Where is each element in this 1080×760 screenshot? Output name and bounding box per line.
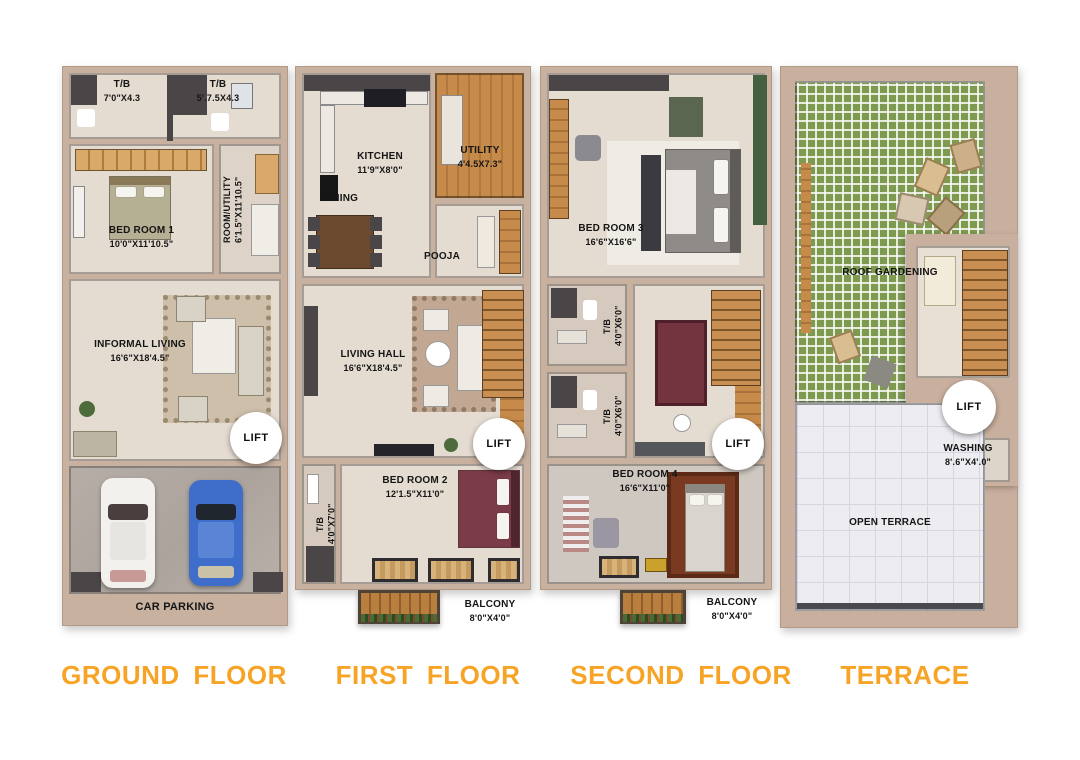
- label-tb-left: T/B 7'0"X4.3: [86, 78, 158, 104]
- wardrobe-panel: [488, 558, 520, 582]
- shower-area: [551, 376, 577, 408]
- room-name: T/B: [315, 470, 327, 578]
- room-name: CAR PARKING: [69, 600, 281, 615]
- bed-sheet: [666, 170, 696, 234]
- room-name: ROOF GARDENING: [810, 266, 970, 280]
- room-name: DINING: [305, 192, 375, 206]
- chair: [370, 235, 382, 249]
- ff-lift: LIFT: [473, 418, 525, 470]
- lounge-chair: [829, 330, 861, 365]
- label-bedroom3: BED ROOM 3 16'6"X16'6": [556, 222, 666, 248]
- room-name: T/B: [602, 290, 614, 362]
- label-pooja: POOJA: [407, 250, 477, 264]
- room-dims: 4'0"X7'0": [327, 470, 339, 578]
- plant: [79, 401, 95, 417]
- pillow: [116, 187, 136, 197]
- label-sf-tb-lower: T/B 4'0"X6'0": [602, 378, 625, 454]
- dining-table: [316, 215, 374, 269]
- room-name: LIVING HALL: [313, 348, 433, 362]
- wardrobe: [549, 99, 569, 219]
- label-bedroom4: BED ROOM 4 16'6"X11'0": [580, 468, 710, 494]
- armchair: [423, 309, 449, 331]
- room-name: KITCHEN: [325, 150, 435, 164]
- label-kitchen: KITCHEN 11'9"X8'0": [325, 150, 435, 176]
- car-roof: [198, 522, 234, 558]
- room-dims: 4'0"X6'0": [614, 290, 626, 362]
- label-informal-living: INFORMAL LIVING 16'6"X18'4.5": [74, 338, 206, 364]
- windshield: [196, 504, 236, 520]
- room-name: BED ROOM 1: [69, 224, 214, 238]
- study-desk: [549, 75, 669, 91]
- ground-floor-plan: T/B 7'0"X4.3 T/B 5'.7.5X4.3 BED ROOM 1 1…: [62, 66, 288, 626]
- gate-pillar: [253, 572, 283, 592]
- chair: [593, 518, 619, 548]
- floor-plan-sheet: T/B 7'0"X4.3 T/B 5'.7.5X4.3 BED ROOM 1 1…: [0, 0, 1080, 760]
- console-table: [374, 444, 434, 456]
- room-dims: 10'0"X11'10.5": [69, 238, 214, 250]
- second-floor-title: SECOND FLOOR: [570, 660, 791, 691]
- washbasin-counter: [557, 424, 587, 438]
- garden-stool: [863, 355, 896, 388]
- toilet: [583, 300, 597, 320]
- staircase: [482, 290, 524, 398]
- open-terrace: [795, 403, 985, 611]
- lounge-chair: [914, 157, 951, 197]
- label-dining: DINING: [305, 192, 375, 206]
- room-name: UTILITY: [437, 144, 523, 158]
- shower-area: [551, 288, 577, 318]
- pooja-cabinet: [499, 210, 521, 274]
- label-bedroom2: BED ROOM 2 12'1.5"X11'0": [355, 474, 475, 500]
- terrace-lift: LIFT: [942, 380, 996, 434]
- room-dims: 11'9"X8'0": [325, 164, 435, 176]
- ff-utility: [435, 73, 524, 198]
- wardrobe: [75, 149, 207, 171]
- second-floor-plan: BED ROOM 3 16'6"X16'6" T/B 4'0"X6'0" T/B…: [540, 66, 772, 590]
- bed: [665, 149, 741, 253]
- headboard: [730, 150, 740, 252]
- room-dims: 8'.6"X4'.0": [926, 456, 1010, 468]
- room-name: OPEN TERRACE: [825, 516, 955, 530]
- toilet: [583, 390, 597, 410]
- chair: [370, 253, 382, 267]
- plant-strip: [753, 75, 767, 225]
- lounge-chair: [949, 138, 982, 174]
- striped-rug: [563, 496, 589, 552]
- lift-label: LIFT: [956, 401, 981, 413]
- room-name: POOJA: [407, 250, 477, 264]
- room-name: T/B: [602, 378, 614, 454]
- console-table: [635, 442, 705, 456]
- room-dims: 16'6"X18'4.5": [313, 362, 433, 374]
- ground-floor-title: GROUND FLOOR: [61, 660, 287, 691]
- plant: [444, 438, 458, 452]
- bed: [685, 484, 725, 572]
- room-dims: 4'4.5X7.3": [437, 158, 523, 170]
- label-ff-balcony: BALCONY 8'0"X4'0": [450, 598, 530, 624]
- room-dims: 12'1.5"X11'0": [355, 488, 475, 500]
- side-table: [673, 414, 691, 432]
- armchair: [178, 396, 208, 422]
- label-open-terrace: OPEN TERRACE: [825, 516, 955, 530]
- label-tb-right: T/B 5'.7.5X4.3: [180, 78, 256, 104]
- headboard: [110, 177, 170, 185]
- staircase: [711, 290, 761, 386]
- washbasin-counter: [557, 330, 587, 344]
- gf-lift: LIFT: [230, 412, 282, 464]
- sf-balcony: [620, 590, 686, 624]
- label-roof-gardening: ROOF GARDENING: [810, 266, 970, 280]
- room-name: T/B: [86, 78, 158, 92]
- wardrobe-panel: [372, 558, 418, 582]
- toilet: [211, 113, 229, 131]
- lift-label: LIFT: [486, 438, 511, 450]
- label-ff-tb: T/B 4'0"X7'0": [315, 470, 338, 578]
- car-roof: [110, 522, 146, 560]
- pillow: [714, 160, 728, 194]
- tray: [645, 558, 667, 572]
- label-utility: UTILITY 4'4.5X7.3": [437, 144, 523, 170]
- label-washing: WASHING 8'.6"X4'.0": [926, 442, 1010, 468]
- planter: [801, 163, 811, 333]
- utility-shelf: [255, 154, 279, 194]
- blue-car: [189, 480, 243, 586]
- pillow: [690, 495, 704, 505]
- landing-floor: [924, 256, 956, 306]
- room-name: WASHING: [926, 442, 1010, 456]
- parapet-wall: [797, 603, 983, 609]
- stove: [364, 89, 406, 107]
- lift-label: LIFT: [725, 438, 750, 450]
- room-dims: 5'.7.5X4.3: [180, 92, 256, 104]
- pillow: [497, 479, 509, 505]
- chair: [308, 235, 320, 249]
- chair: [308, 253, 320, 267]
- room-dims: 16'6"X11'0": [580, 482, 710, 494]
- room-name: BALCONY: [692, 596, 772, 610]
- gf-bedroom1: [69, 144, 214, 274]
- gate-pillar: [71, 572, 101, 592]
- armchair: [423, 385, 449, 407]
- room-name: INFORMAL LIVING: [74, 338, 206, 352]
- room-name: ROOM/UTILITY: [222, 152, 234, 268]
- chair: [370, 217, 382, 231]
- headboard: [511, 471, 519, 547]
- room-dims: 16'6"X16'6": [556, 236, 666, 248]
- utility-bench: [251, 204, 279, 256]
- bench: [73, 431, 117, 457]
- room-name: BALCONY: [450, 598, 530, 612]
- sf-lift: LIFT: [712, 418, 764, 470]
- gf-car-parking: [69, 466, 281, 594]
- white-car: [101, 478, 155, 588]
- rear-window: [198, 566, 234, 578]
- pillow: [497, 513, 509, 539]
- garden-table: [894, 192, 929, 226]
- room-name: BED ROOM 4: [580, 468, 710, 482]
- wardrobe-panel: [428, 558, 474, 582]
- terrace-title: TERRACE: [840, 660, 969, 691]
- chair: [575, 135, 601, 161]
- label-bedroom1: BED ROOM 1 10'0"X11'10.5": [69, 224, 214, 250]
- pillow: [714, 208, 728, 242]
- rear-window: [110, 570, 146, 582]
- room-dims: 4'0"X6'0": [614, 378, 626, 454]
- sofa: [238, 326, 264, 396]
- pillow: [144, 187, 164, 197]
- first-floor-title: FIRST FLOOR: [336, 660, 521, 691]
- label-room-utility: ROOM/UTILITY 6'1.5"X11'10.5": [222, 152, 245, 268]
- lounge-chair: [926, 196, 965, 236]
- ff-pooja: [435, 204, 524, 278]
- pillow: [708, 495, 722, 505]
- room-name: BED ROOM 2: [355, 474, 475, 488]
- room-dims: 8'0"X4'0": [692, 610, 772, 622]
- room-dims: 6'1.5"X11'10.5": [234, 152, 246, 268]
- floor-mat: [599, 556, 639, 578]
- lift-label: LIFT: [243, 432, 268, 444]
- armchair: [176, 296, 206, 322]
- windshield: [108, 504, 148, 520]
- lounge-chair: [669, 97, 703, 137]
- sofa: [655, 320, 707, 406]
- ff-balcony: [358, 590, 440, 624]
- label-living-hall: LIVING HALL 16'6"X18'4.5": [313, 348, 433, 374]
- room-dims: 8'0"X4'0": [450, 612, 530, 624]
- room-name: T/B: [180, 78, 256, 92]
- pooja-platform: [477, 216, 495, 268]
- room-dims: 16'6"X18'4.5": [74, 352, 206, 364]
- room-dims: 7'0"X4.3: [86, 92, 158, 104]
- label-sf-tb-upper: T/B 4'0"X6'0": [602, 290, 625, 362]
- first-floor-plan: KITCHEN 11'9"X8'0" DINING UTILITY 4'4.5X…: [295, 66, 531, 590]
- terrace-plan: ROOF GARDENING WASHING 8'.6"X4'.0" LIFT …: [780, 66, 1018, 628]
- label-sf-balcony: BALCONY 8'0"X4'0": [692, 596, 772, 622]
- toilet: [77, 109, 95, 127]
- room-name: BED ROOM 3: [556, 222, 666, 236]
- label-car-parking: CAR PARKING: [69, 600, 281, 615]
- chair: [308, 217, 320, 231]
